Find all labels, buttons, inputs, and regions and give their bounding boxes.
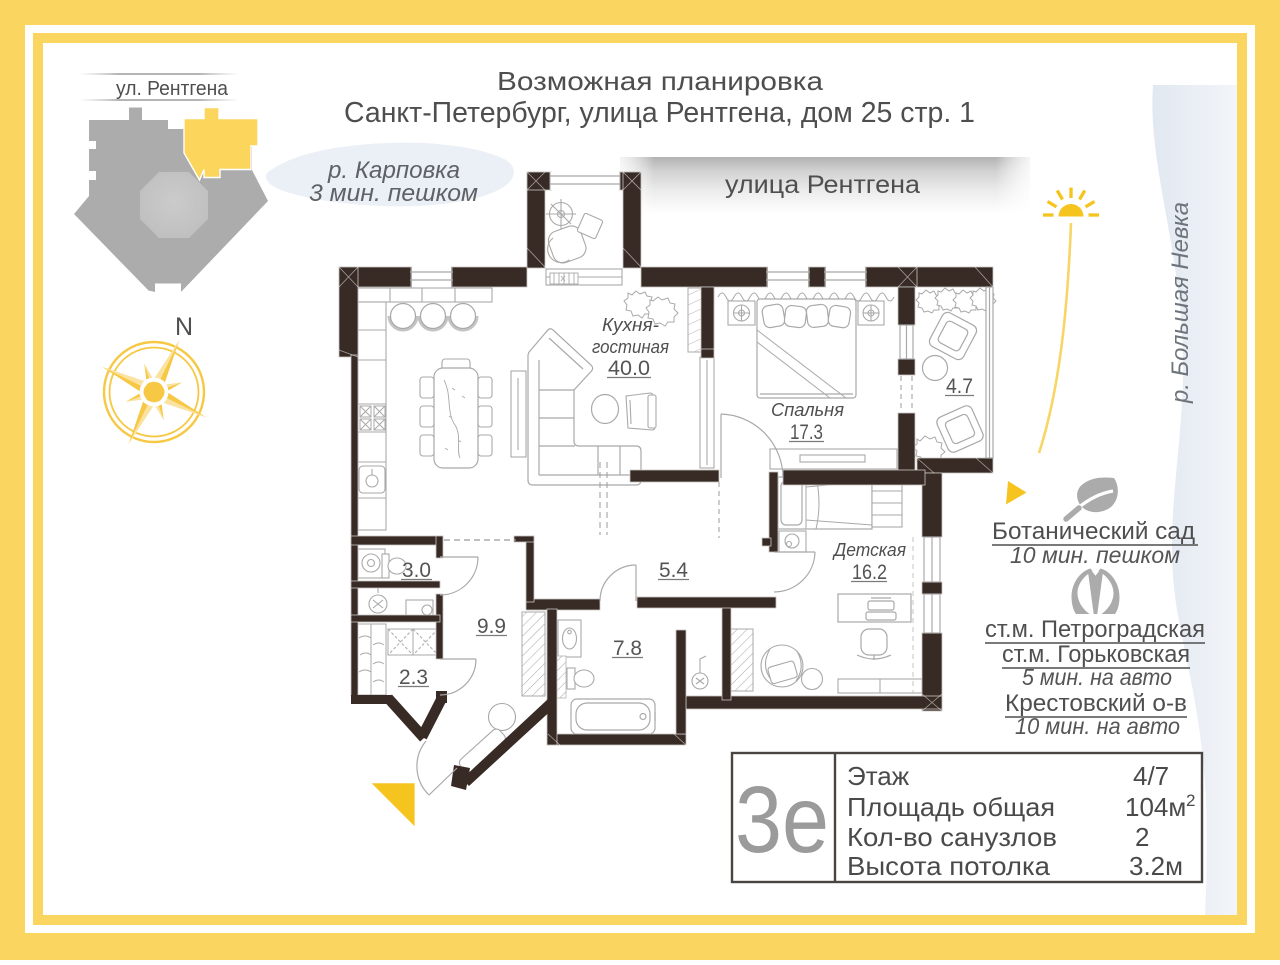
svg-text:3 мин. пешком: 3 мин. пешком <box>309 180 478 207</box>
svg-text:3.0: 3.0 <box>402 558 431 582</box>
svg-text:Ботанический сад: Ботанический сад <box>992 518 1195 545</box>
svg-text:Площадь общая: Площадь общая <box>847 792 1055 822</box>
svg-text:17.3: 17.3 <box>790 420 823 444</box>
svg-text:10 мин. пешком: 10 мин. пешком <box>1010 542 1180 568</box>
svg-text:3е: 3е <box>735 767 829 873</box>
svg-text:2: 2 <box>1186 791 1195 810</box>
svg-text:Кухня-: Кухня- <box>602 314 659 335</box>
svg-text:Кол-во санузлов: Кол-во санузлов <box>847 822 1057 852</box>
svg-text:2.3: 2.3 <box>399 665 428 689</box>
svg-text:р. Большая Невка: р. Большая Невка <box>1167 202 1194 404</box>
svg-text:ст.м. Петроградская: ст.м. Петроградская <box>985 616 1205 643</box>
svg-text:Возможная планировка: Возможная планировка <box>497 66 824 96</box>
svg-text:Спальня: Спальня <box>771 399 844 420</box>
svg-text:Детская: Детская <box>832 539 906 560</box>
svg-text:5 мин. на авто: 5 мин. на авто <box>1022 664 1172 690</box>
svg-text:7.8: 7.8 <box>613 636 642 660</box>
svg-text:2: 2 <box>1135 822 1149 852</box>
svg-text:ул. Рентгена: ул. Рентгена <box>116 77 229 100</box>
svg-text:10 мин. на авто: 10 мин. на авто <box>1015 713 1180 739</box>
svg-text:9.9: 9.9 <box>477 614 506 638</box>
svg-text:16.2: 16.2 <box>852 560 887 584</box>
svg-text:Высота потолка: Высота потолка <box>847 851 1051 881</box>
svg-text:N: N <box>175 313 193 341</box>
svg-text:3.2м: 3.2м <box>1129 851 1183 881</box>
svg-text:40.0: 40.0 <box>608 356 650 380</box>
svg-text:улица Рентгена: улица Рентгена <box>725 171 920 199</box>
svg-text:4.7: 4.7 <box>946 374 973 398</box>
svg-text:гостиная: гостиная <box>592 336 669 357</box>
svg-text:Санкт-Петербург, улица Рентген: Санкт-Петербург, улица Рентгена, дом 25 … <box>344 97 975 129</box>
svg-text:Этаж: Этаж <box>847 761 910 791</box>
svg-text:5.4: 5.4 <box>659 558 688 582</box>
svg-text:104м: 104м <box>1125 792 1186 822</box>
svg-text:4/7: 4/7 <box>1133 761 1169 791</box>
